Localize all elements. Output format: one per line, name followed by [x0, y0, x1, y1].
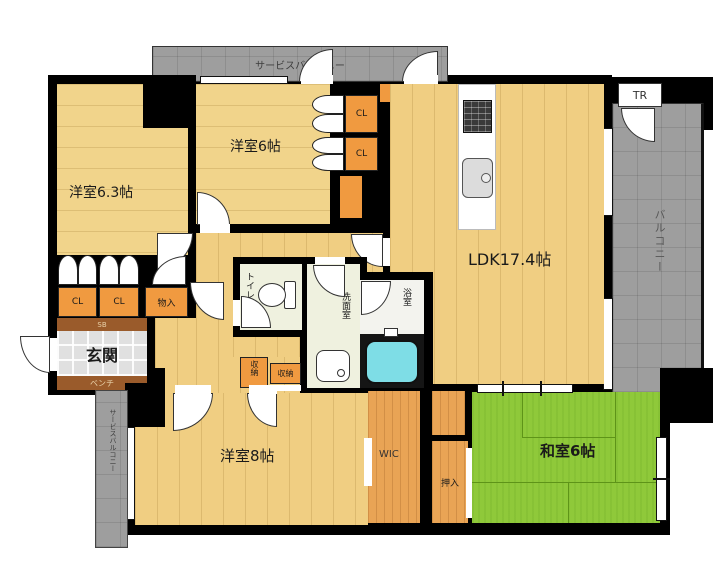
closet-genkan-2: CL: [99, 287, 139, 317]
service-balcony-left: サービスバルコニー: [95, 390, 128, 548]
storage-shuno-2: 収納: [270, 363, 301, 384]
storage-oshiire-label: 押入: [441, 476, 459, 489]
window-ldk-east-1: [603, 128, 613, 216]
storage-oshiire: 押入: [432, 441, 468, 523]
washbasin-icon: [316, 350, 350, 382]
door-gap-toilet: [233, 300, 240, 326]
walk-in-closet-label: WIC: [379, 449, 399, 460]
room-bath: 浴室: [360, 280, 424, 388]
room-senmen: 洗面室: [307, 264, 360, 388]
door-gap-senmen: [315, 257, 345, 264]
sink-drain: [481, 173, 491, 183]
closet-label: CL: [113, 297, 124, 307]
storage-shuno-label: 収納: [249, 360, 260, 376]
entrance-genkan-label: 玄関: [86, 342, 118, 366]
window-ldk-east-2: [603, 298, 613, 390]
closet-genkan-1: CL: [58, 287, 97, 317]
closet-room6-2: CL: [345, 137, 378, 171]
closet-label: CL: [72, 297, 83, 307]
room-washitsu: 和室6帖: [472, 392, 660, 523]
fold-door-leaf: [312, 114, 344, 133]
bench-label: ベンチ: [90, 378, 114, 389]
room-washitsu-label: 和室6帖: [540, 440, 595, 461]
balcony-main: バルコニー: [612, 103, 704, 393]
storage-monoire: 物入: [145, 287, 188, 317]
door-gap-room8-1: [175, 385, 211, 394]
fold-door-leaf: [312, 137, 344, 154]
toilet-bowl: [258, 283, 286, 307]
bathtub-icon: [365, 340, 419, 384]
stove-icon: [463, 100, 492, 133]
floor-plan: サービスバルコニー バルコニー TR 洋室6.3帖 洋室6帖 CL CL: [0, 0, 720, 576]
door-gap-wic: [364, 438, 372, 486]
fold-door-leaf: [99, 255, 119, 285]
hallway-patch: [233, 337, 300, 357]
closet-strip: [340, 176, 362, 218]
room-toilet: トイレ: [240, 264, 302, 330]
closet-fold-doors-room6-2: [312, 137, 344, 171]
closet-label: CL: [356, 109, 367, 119]
shoe-box: SB: [57, 318, 147, 331]
storage-monoire-label: 物入: [157, 296, 175, 309]
entrance-genkan: 玄関: [57, 331, 147, 376]
closet-label: CL: [356, 149, 367, 159]
window-tick: [502, 381, 504, 396]
wall-pillar-southeast: [660, 368, 713, 423]
door-arc-senmen: [313, 265, 345, 297]
door-arc-bath: [361, 281, 391, 315]
service-balcony-left-label: サービスバルコニー: [108, 409, 118, 472]
walk-in-closet: WIC: [368, 391, 420, 523]
fold-door-leaf: [119, 255, 139, 285]
door-gap-ldk-hall: [383, 238, 390, 266]
tatami-line: [615, 392, 616, 482]
fold-door-leaf: [58, 255, 78, 285]
room-ldk-label: LDK17.4帖: [468, 246, 551, 270]
window-washitsu-east: [656, 437, 667, 521]
room-western-8-label: 洋室8帖: [220, 445, 275, 466]
washbasin-drain: [337, 369, 345, 377]
tatami-line: [472, 482, 660, 483]
kitchen-sink-icon: [462, 158, 493, 198]
balcony-label: バルコニー: [651, 209, 667, 274]
door-gap-room8-2: [249, 385, 277, 394]
closet-fold-doors-genkan-1: [58, 255, 97, 285]
tatami-line: [522, 392, 523, 437]
bathtub-frame: [360, 334, 424, 388]
shoe-box-label: SB: [97, 321, 106, 329]
closet-corner: [432, 391, 465, 435]
entry-door-arc: [20, 336, 50, 373]
tatami-line: [568, 482, 569, 523]
room-western-6-3-label: 洋室6.3帖: [69, 182, 133, 202]
storage-shuno-label: 収納: [278, 368, 294, 379]
fold-door-leaf: [312, 154, 344, 171]
bathtub-step: [384, 328, 398, 337]
fold-door-leaf: [78, 255, 98, 285]
closet-room6-1: CL: [345, 95, 378, 133]
fold-door-leaf: [312, 95, 344, 114]
room-bath-label: 浴室: [400, 288, 413, 306]
door-gap-ldk-north: [404, 75, 438, 84]
closet-fold-doors-room6-1: [312, 95, 344, 133]
wall-notch-room63: [143, 75, 196, 128]
entry-door-gap: [49, 338, 57, 371]
room-western-6-label: 洋室6帖: [230, 136, 281, 156]
door-gap-room6: [200, 224, 230, 233]
window-washitsu-north: [477, 384, 573, 393]
room-western-8: 洋室8帖: [135, 393, 368, 525]
window-tick: [653, 478, 670, 480]
closet-fold-doors-genkan-2: [99, 255, 139, 285]
tatami-line: [522, 437, 615, 438]
trunk-room-label: TR: [619, 84, 661, 106]
room-toilet-label: トイレ: [243, 272, 256, 299]
trunk-room: TR: [618, 83, 662, 107]
storage-shuno-1: 収納: [240, 357, 268, 388]
window-north: [200, 76, 288, 84]
door-gap-room6-north: [301, 75, 333, 84]
window-tick: [540, 381, 542, 396]
wall-notch-room8: [125, 383, 165, 427]
